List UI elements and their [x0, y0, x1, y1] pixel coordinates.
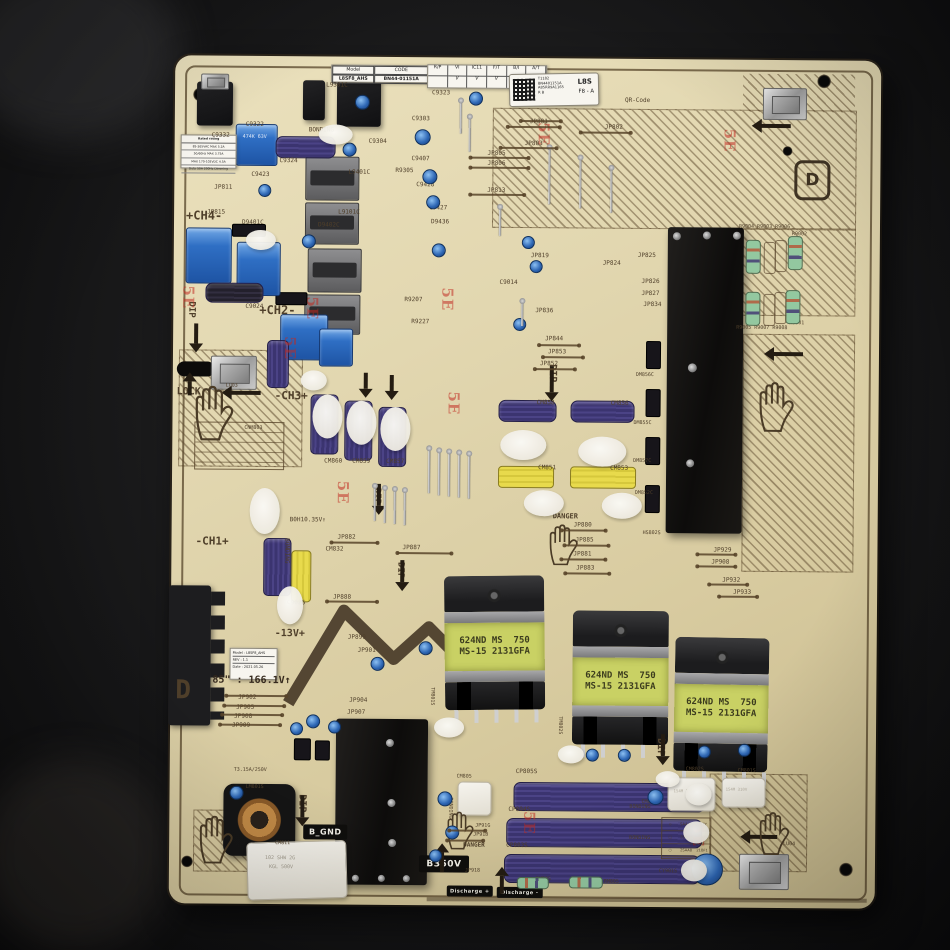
screw-dot [673, 232, 681, 240]
choke-l9401c [305, 156, 359, 200]
silkscreen-label: JP825 [638, 253, 656, 259]
jumper-pin [468, 453, 470, 499]
silkscreen-label: CY901S [659, 869, 677, 874]
transistor [294, 738, 311, 760]
silkscreen-label: DM852C [635, 491, 653, 496]
qc-stamp: 5E [334, 481, 352, 505]
metal-clip-lu01 [763, 88, 807, 120]
screw-dot [387, 799, 395, 807]
blue-component [530, 260, 543, 273]
boxed-d-mark: D [794, 160, 830, 200]
rev-date: Date : 2021.05.26 [233, 664, 275, 670]
b-gnd-badge: B_GND [303, 824, 347, 839]
barcode-variant: F8 - A [578, 89, 594, 95]
barcode-model-short: L8S [577, 78, 592, 86]
jumper-line [539, 344, 579, 346]
qc-stamp: 5E [438, 287, 456, 311]
silkscreen-label: HS802S [643, 531, 661, 536]
arrow-stem [761, 124, 791, 128]
green-resistor [746, 240, 761, 274]
jumper-pin [428, 447, 430, 493]
silkscreen-label: CM860 [324, 458, 342, 464]
legend-cell: ○ [662, 848, 678, 852]
silkscreen-label: CM832 [325, 546, 343, 552]
transformer-label: 624ND MS 750MS-15 2131GFA [572, 657, 668, 706]
main-transformer-3: 624ND MS 750MS-15 2131GFA [673, 637, 770, 787]
qc-stamp: 5E [303, 296, 321, 320]
model-key: Model [332, 66, 374, 75]
screw-dot [733, 232, 741, 240]
silkscreen-label: DANGER [553, 513, 578, 520]
glue-blob [683, 821, 709, 843]
blue-component [738, 744, 751, 757]
metal-clip-top-left [201, 73, 229, 89]
jumper-pin [458, 452, 460, 498]
transformer-bobbin [445, 681, 545, 710]
silkscreen-label: 102 SHW 2G [265, 856, 295, 861]
silkscreen-label: JP811 [214, 185, 232, 191]
jumper-pin [384, 487, 386, 523]
transformer-core-top [675, 637, 770, 675]
choke [307, 248, 361, 292]
silkscreen-label: DM857C [633, 459, 651, 464]
jumper-pin [404, 489, 406, 525]
silkscreen-label: CM851 [538, 465, 556, 471]
glue-blob [558, 745, 584, 763]
silkscreen-label: CP805S [516, 769, 538, 775]
keepout-hatch-right-mid [741, 334, 855, 573]
blue-component [343, 143, 357, 157]
blue-component [415, 129, 431, 145]
glue-blob [681, 859, 707, 881]
silkscreen-label: JP901 [358, 648, 376, 654]
transformer-core-band [573, 646, 669, 658]
blue-component [355, 95, 370, 110]
silkscreen-label: JP918 [465, 869, 480, 874]
blue-component [513, 318, 526, 331]
silkscreen-label: C9324 [279, 158, 297, 164]
silkscreen-label: C9323 [432, 90, 450, 96]
qc-stamp: 5E [721, 129, 739, 153]
qc-stamp: 5E [179, 285, 197, 309]
silkscreen-label: +CH4- [186, 209, 222, 221]
silkscreen-label: JP836 [535, 308, 553, 314]
screw-dot [403, 875, 410, 882]
green-resistor [745, 292, 760, 326]
metal-clip-lu04 [739, 854, 789, 890]
silkscreen-label: JP91G [475, 824, 490, 829]
heatsink-right [666, 227, 744, 534]
silkscreen-label: D9402C [318, 222, 340, 228]
hand-warning-icon [192, 385, 238, 444]
jumper-pin [460, 100, 462, 134]
arrow-head [764, 347, 774, 361]
blue-component [229, 786, 243, 800]
jumper-pin [469, 116, 471, 152]
silkscreen-label: C9014 [500, 280, 518, 286]
legend-cell: □ [662, 835, 678, 839]
jumper-line [447, 839, 483, 841]
arrow-stem [390, 375, 394, 391]
code-key: CODE [374, 66, 428, 75]
silkscreen-label: BONDING [283, 538, 289, 563]
blue-component [302, 234, 316, 248]
blue-component [522, 236, 535, 249]
blue-component [258, 184, 271, 197]
transformer-core-top [444, 575, 544, 612]
blue-component [426, 195, 440, 209]
silkscreen-label: CP803S [506, 843, 528, 849]
screw-dot [388, 839, 396, 847]
silkscreen-label: R9005 R9007 R9008 [736, 326, 787, 331]
mounting-hole [817, 74, 831, 88]
glue-blob [500, 430, 546, 460]
arrow-stem [188, 381, 192, 395]
check-header: R/P [428, 65, 448, 76]
check-mark: V [467, 77, 487, 88]
check-mark: V [487, 77, 507, 88]
qc-stamp: 5E [520, 811, 538, 835]
silkscreen-label: B0H10.35V↑ [290, 517, 326, 523]
transformer-core-top [573, 610, 669, 647]
silkscreen-label: CM857 [386, 459, 404, 465]
model-code-sticker: Model CODE L8SF8_AHS BN44-01151A [331, 65, 429, 84]
transformer-label: 624ND MS 750MS-15 2131GFA [674, 684, 769, 734]
blue-component [306, 714, 320, 728]
glue-blob [656, 771, 680, 787]
blue-component [618, 749, 631, 762]
screw-dot [686, 459, 694, 467]
jumper-line [719, 596, 757, 598]
opto-ic [303, 80, 325, 120]
arrow-head [545, 392, 559, 401]
pcb-group: 624ND MS 750MS-15 2131GFA 624ND MS 750MS… [0, 0, 950, 950]
jumper-line [709, 583, 747, 585]
legend-cell: 21BF1 [694, 848, 710, 852]
jumper-line [449, 829, 485, 831]
blue-component [419, 641, 433, 655]
silkscreen-label: CM853 [610, 466, 628, 472]
arrow-head [385, 391, 399, 400]
jumper-pin [521, 300, 523, 326]
jumper-line [697, 565, 735, 567]
b-gnd-text: B_GND [309, 827, 342, 836]
screw-dot [378, 875, 385, 882]
silkscreen-label: JP802 [605, 125, 623, 131]
jumper-pin [579, 156, 581, 208]
silkscreen-label: -CH1+ [195, 535, 228, 546]
arrow-head [189, 343, 203, 352]
silkscreen-label: JP844 [545, 336, 563, 342]
arrow-stem [550, 366, 554, 392]
check-mark: V [448, 76, 468, 87]
blue-component [586, 749, 599, 762]
arrow-head [495, 867, 509, 876]
qc-stamp: 5E [281, 336, 299, 360]
glue-blob [524, 490, 564, 516]
table-row [195, 452, 283, 463]
silkscreen-label: R9305 [395, 168, 413, 174]
silkscreen-label: JP899 [348, 635, 366, 641]
check-header: IC11 [467, 66, 487, 77]
box-cap-cm801s [721, 778, 765, 808]
silkscreen-label: JP826 [642, 279, 660, 285]
silkscreen-label: C9407 [411, 156, 429, 162]
diode-dm856c [646, 341, 661, 369]
green-resistor [517, 877, 549, 889]
jumper-line [535, 368, 575, 370]
blue-component [647, 789, 663, 805]
silkscreen-label: CM856 [611, 401, 629, 407]
hand-warning-icon [756, 382, 798, 436]
silkscreen-label: C9332 [212, 133, 230, 139]
silkscreen-label: -13V+ [275, 629, 305, 639]
discharge-plus-badge: Discharge + [447, 885, 493, 896]
silkscreen-label: CM802S [686, 767, 704, 772]
silkscreen-label: D9436 [431, 219, 449, 225]
jumper-pin [438, 449, 440, 495]
silkscreen-label: KGL 500V [269, 865, 293, 870]
glue-blob [602, 493, 642, 519]
jumper-pin [610, 167, 612, 213]
silkscreen-label: JP853 [548, 349, 566, 355]
silkscreen-label: L9401C [348, 170, 370, 176]
resistor-outline [774, 292, 786, 324]
silkscreen-label: 154M 310V [726, 788, 748, 792]
jumper-line [697, 553, 735, 555]
arrow-head [183, 372, 197, 381]
silkscreen-label: JP819 [531, 253, 549, 259]
box-cap-cm811 [246, 840, 348, 901]
screw-dot [688, 363, 697, 372]
glue-blob [319, 124, 353, 144]
silkscreen-label: R9207 [404, 297, 422, 303]
code-value: BN44-01151A [374, 75, 428, 84]
silkscreen-label: T3.15A/250V [234, 768, 267, 773]
blue-component [437, 791, 452, 806]
green-resistor [569, 876, 603, 888]
qr-code [513, 79, 535, 101]
silkscreen-label: JP904 [349, 698, 367, 704]
arrow-stem [661, 734, 665, 756]
rating-row: Duty 50A 200Hz Dimming [181, 165, 235, 173]
screw-dot [703, 231, 711, 239]
silkscreen-label: JP907 [347, 710, 365, 716]
discharge-minus-text: Discharge - [501, 889, 539, 895]
jumper-pin [448, 450, 450, 496]
blue-component [328, 721, 341, 734]
silkscreen-label: RM805 [604, 880, 619, 885]
silkscreen-label: LM801S [246, 785, 264, 790]
transformer-label: 624ND MS 750MS-15 2131GFA [444, 622, 544, 671]
check-mark [428, 76, 448, 87]
screw-dot [386, 739, 394, 747]
arrow-head [752, 119, 762, 133]
transistor [315, 740, 330, 760]
silkscreen-label: C9423 [251, 172, 269, 178]
silkscreen-label: -CH3+ [275, 390, 308, 401]
screw-dot [352, 875, 359, 882]
silkscreen-label: R9004 R9003 R9006 [739, 225, 790, 230]
silkscreen-label: L9301C [326, 82, 348, 88]
blue-component [698, 745, 711, 758]
rating-sticker: Rated rating85-265VAC MAX 5.2A50/60Hz MA… [180, 134, 236, 168]
main-transformer-1: 624ND MS 750MS-15 2131GFA [444, 575, 545, 724]
jumper-pin [394, 488, 396, 524]
glue-blob [578, 436, 626, 466]
arrow-stem [300, 795, 304, 817]
blue-component [422, 169, 437, 184]
transformer-bobbin [572, 716, 668, 745]
jumper-line [564, 544, 608, 546]
glue-blob [301, 370, 327, 390]
arrow-stem [773, 352, 803, 356]
mounting-hole [783, 146, 793, 156]
blue-component [429, 849, 442, 862]
film-cap-c9332 [235, 124, 277, 166]
glue-blob [434, 717, 464, 737]
boxed-d-text: D [805, 170, 819, 190]
silkscreen-label: TM801S [429, 687, 434, 705]
glue-blob [246, 230, 276, 250]
jumper-line [543, 356, 583, 358]
blue-component [469, 92, 483, 106]
green-resistor [785, 290, 800, 324]
mounting-hole [839, 863, 853, 877]
arrow-head [359, 389, 373, 398]
silkscreen-label: DM855C [633, 421, 651, 426]
blue-component [290, 722, 303, 735]
silkscreen-label: L9101C [338, 210, 360, 216]
qc-stamp: 5E [445, 391, 463, 415]
barcode-line4: R B [538, 90, 564, 95]
jumper-line [521, 120, 561, 122]
silkscreen-label: JP887 [402, 545, 420, 551]
blue-component [445, 825, 459, 839]
arrow-stem [400, 560, 404, 582]
silkscreen-label: CM805 [457, 775, 472, 780]
silkscreen-label: D [175, 677, 191, 703]
hand-warning-icon [197, 815, 237, 867]
photo-background: 624ND MS 750MS-15 2131GFA 624ND MS 750MS… [0, 0, 950, 950]
silkscreen-label: +CH2- [259, 304, 295, 316]
silkscreen-label: TM802S [557, 716, 562, 734]
silkscreen-label: CM801S [738, 769, 756, 774]
legend-cell: ◇ [662, 822, 678, 826]
blue-component [370, 657, 384, 671]
silkscreen-label: JP882 [338, 535, 356, 541]
film-cap [319, 328, 353, 366]
silkscreen-label: CM811 [275, 841, 290, 846]
silkscreen-label: DM856C [636, 373, 654, 378]
blue-component [432, 243, 446, 257]
silkscreen-label: JP824 [603, 261, 621, 267]
resistor-outline [775, 240, 787, 272]
silkscreen-label: JP827 [641, 291, 659, 297]
arrow-head [295, 817, 309, 826]
arrow-head [395, 582, 409, 591]
jumper-pin [374, 485, 376, 521]
green-resistor [788, 236, 803, 270]
silkscreen-label: JP834 [643, 302, 661, 308]
discharge-plus-text: Discharge + [450, 888, 490, 894]
silkscreen-label: CM859 [352, 459, 370, 465]
silkscreen-label: BONDING [629, 805, 650, 810]
silkscreen-label: 85" : 166.1V↑ [212, 676, 290, 687]
cap-c9024 [205, 283, 263, 303]
arrow-head [656, 756, 670, 765]
jumper-pin [499, 206, 501, 236]
diode-dm855c [645, 389, 660, 417]
silkscreen-label: C9322 [246, 122, 264, 128]
check-header: VI [448, 65, 468, 76]
arrow-stem [364, 373, 368, 389]
silkscreen-label: CNM803 [244, 426, 262, 431]
arrow-stem [194, 323, 198, 343]
mounting-hole [181, 855, 193, 867]
check-header: F/T [487, 66, 507, 77]
legend-cell: 2SAA8 [678, 848, 694, 852]
transformer-core-band [572, 705, 668, 717]
silkscreen-label: QR-Code [625, 98, 650, 104]
silkscreen-label: R9227 [411, 319, 429, 325]
silkscreen-label: C9304 [369, 139, 387, 145]
heatsink-bottom [335, 719, 428, 886]
arrow-stem [500, 876, 504, 894]
barcode-sticker: T1182 BN4401151A A85RR9A1165 R B L8S F8 … [509, 72, 600, 107]
silkscreen-label: C9303 [412, 116, 430, 122]
hand-warning-icon [757, 812, 793, 859]
glue-blob [685, 783, 711, 805]
silkscreen-label: D9401C [242, 220, 264, 226]
silkscreen-label: 474K 63V [243, 135, 267, 140]
silkscreen-label: BONDING [629, 836, 650, 841]
arrow-head [740, 830, 750, 844]
film-cap [186, 227, 232, 283]
